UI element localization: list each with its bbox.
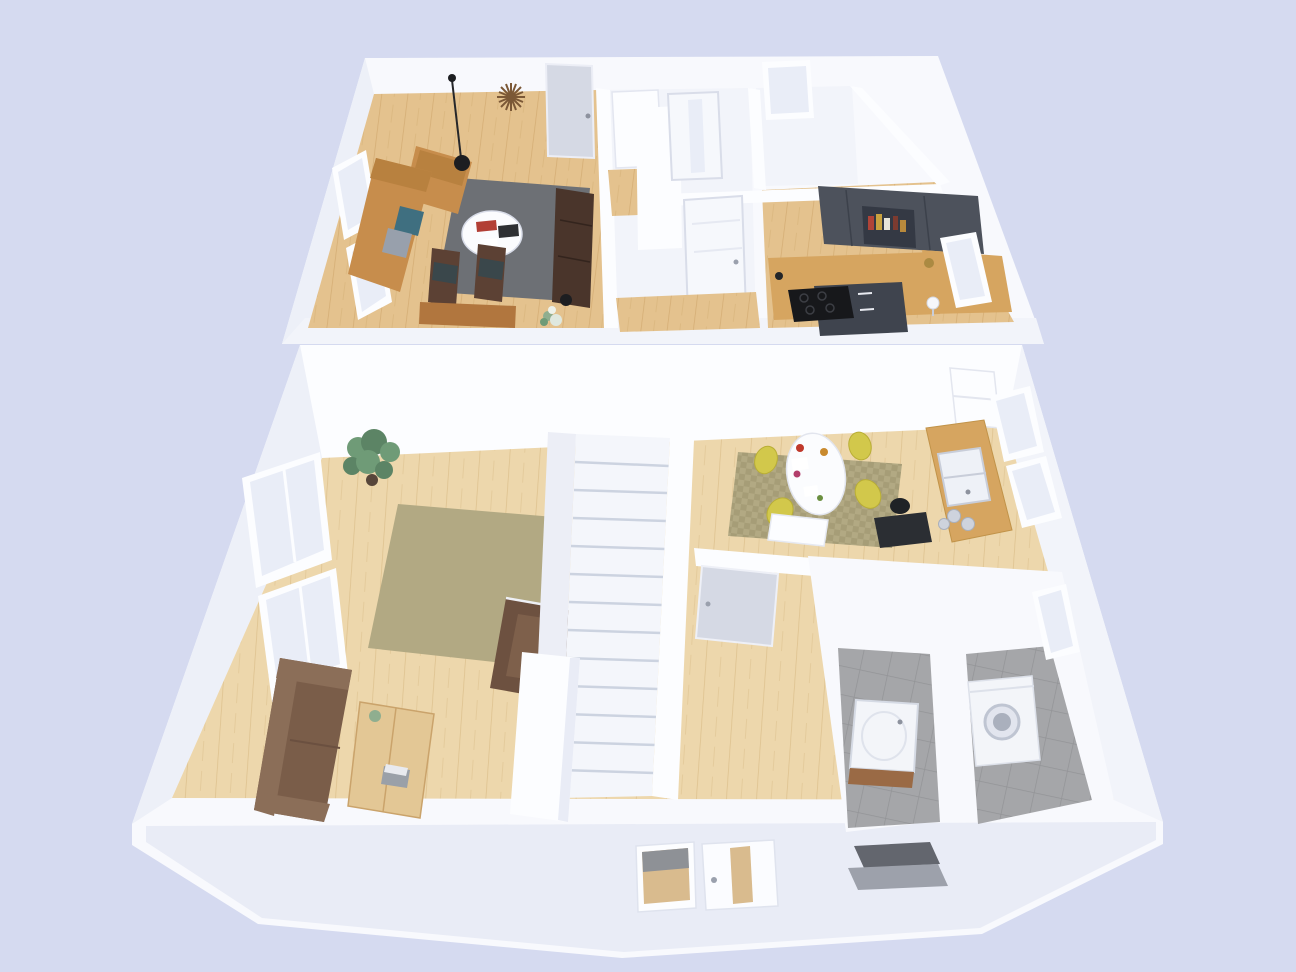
hall-wood-floor — [616, 292, 760, 332]
floor-plan-render — [0, 0, 1296, 972]
washing-machine — [968, 676, 1040, 766]
bath-window-glass — [768, 66, 809, 114]
magazine-red — [476, 220, 497, 232]
hall-door-upper — [668, 92, 722, 180]
dining-chair — [428, 248, 460, 306]
stair-side-volume — [510, 652, 580, 822]
upper-floor — [282, 56, 1044, 344]
plank-coffee-table — [348, 702, 434, 818]
white-cabinet — [768, 514, 828, 546]
floor-plan-svg — [0, 0, 1296, 972]
magazine-dark — [498, 224, 519, 238]
hall-door — [696, 566, 778, 646]
front-window — [636, 842, 696, 912]
gold-pan — [924, 258, 934, 268]
double-sink — [938, 448, 990, 506]
door-living-back — [546, 64, 594, 158]
ground-floor — [132, 345, 1163, 958]
dining-table — [419, 302, 516, 328]
floor-speaker — [560, 294, 572, 306]
entrance-step — [848, 864, 948, 890]
kettle — [775, 272, 783, 280]
sunburst-wall-clock — [497, 83, 525, 111]
bathroom-block — [808, 556, 1114, 832]
upper-bathroom — [762, 60, 814, 120]
table-plant — [369, 710, 381, 722]
vanity-sink — [848, 700, 918, 788]
front-door — [702, 840, 778, 910]
faucet — [966, 490, 971, 495]
door-handle — [586, 114, 591, 119]
desk-chair — [890, 498, 910, 514]
media-shelf — [552, 188, 594, 308]
dining-chair — [474, 244, 506, 302]
door-handle — [711, 877, 717, 883]
